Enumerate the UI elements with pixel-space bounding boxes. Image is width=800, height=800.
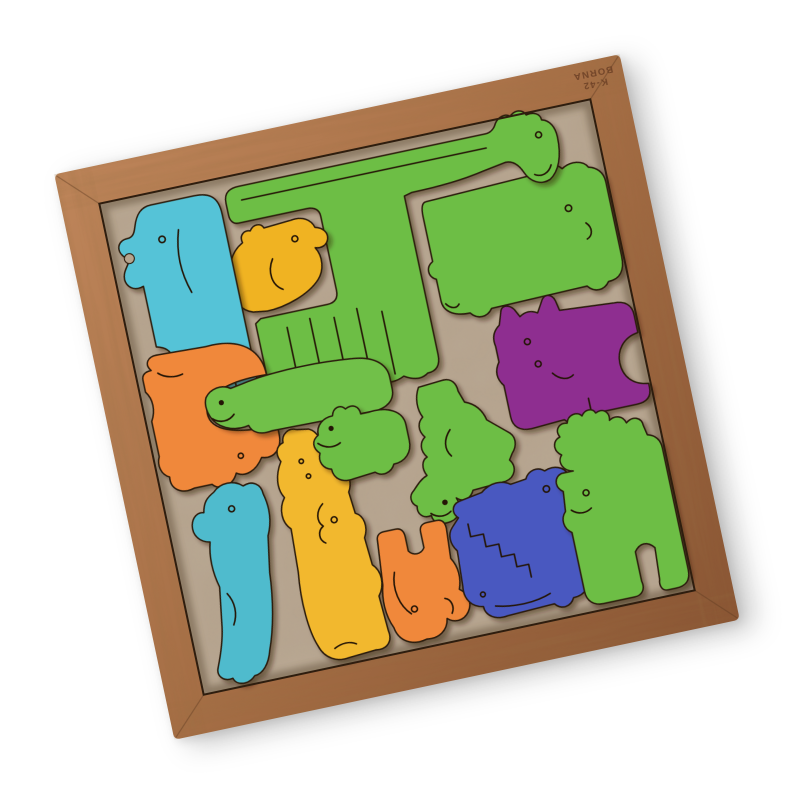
photo-background: K-42 BORNA bbox=[0, 0, 800, 800]
puzzle-photo: K-42 BORNA bbox=[54, 54, 740, 740]
wooden-animal-puzzle: K-42 BORNA bbox=[54, 54, 740, 740]
